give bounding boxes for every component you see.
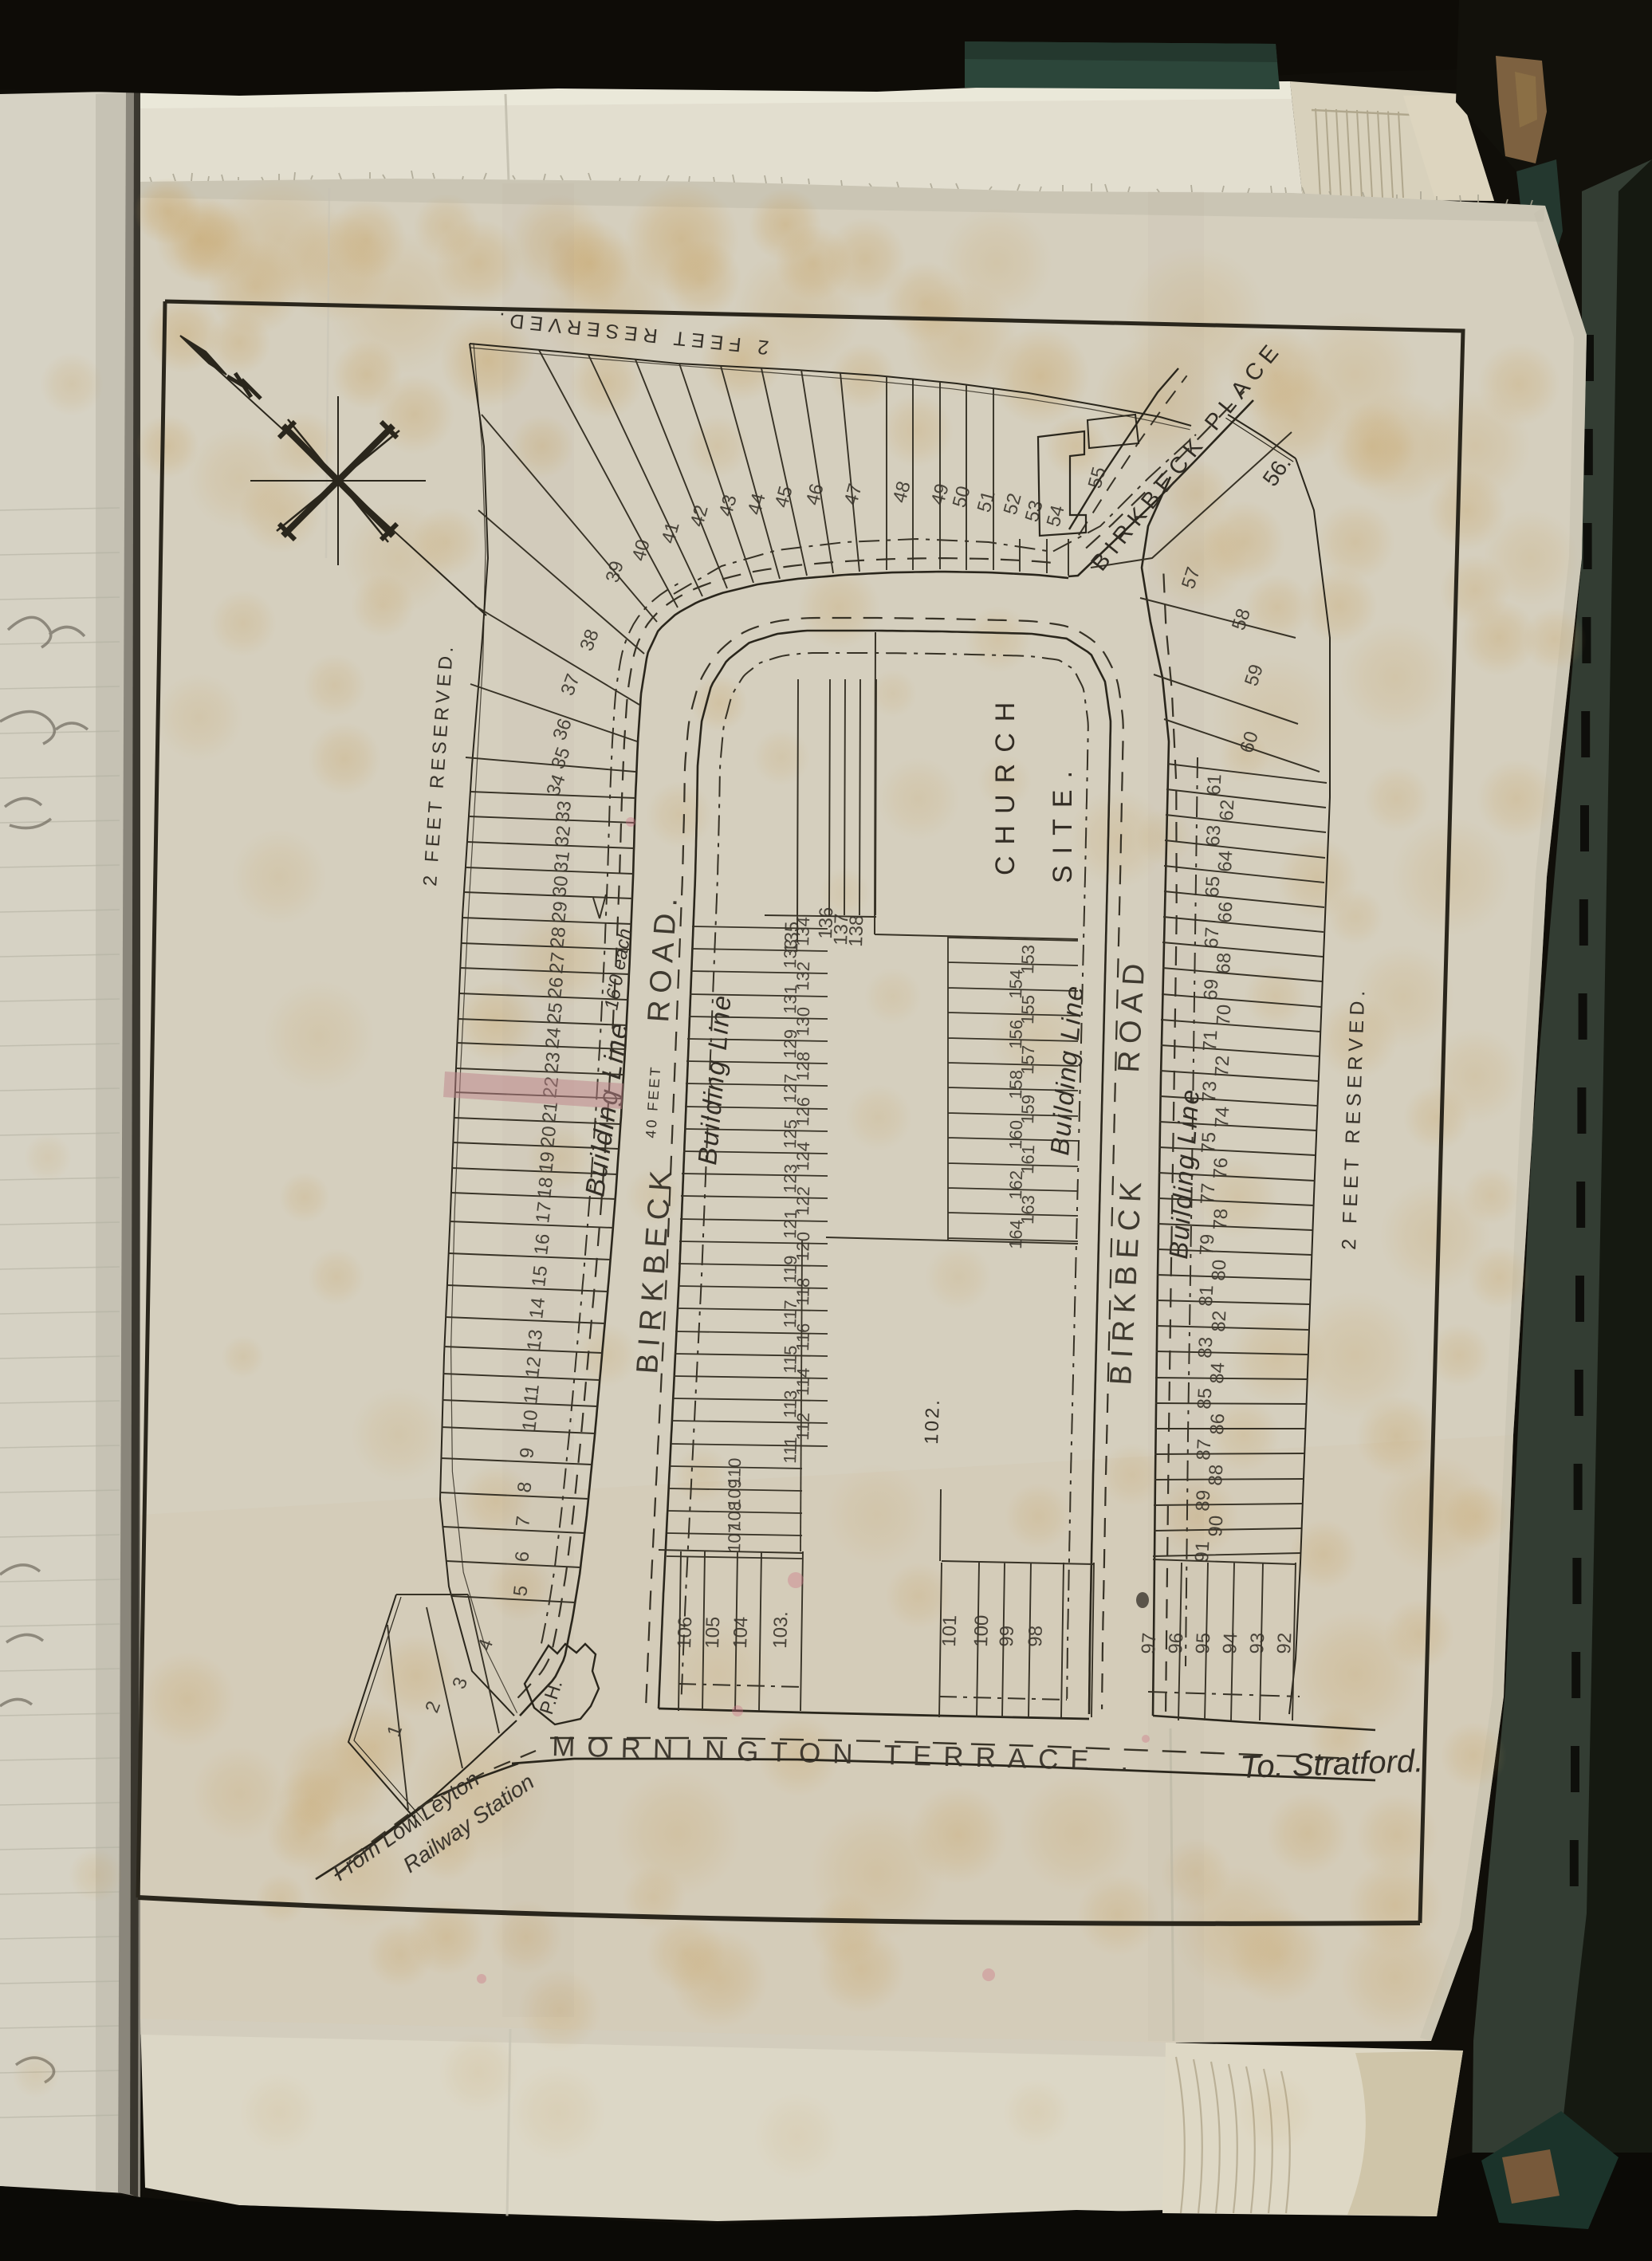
svg-text:82: 82 [1208,1310,1230,1332]
svg-text:76: 76 [1209,1157,1232,1179]
svg-text:11: 11 [520,1383,544,1406]
svg-text:26: 26 [544,976,568,1000]
svg-text:89: 89 [1192,1489,1214,1512]
svg-text:18: 18 [533,1176,557,1200]
svg-text:63: 63 [1202,824,1225,847]
svg-text:68: 68 [1213,952,1235,974]
svg-text:16: 16 [530,1233,554,1256]
svg-text:31: 31 [550,850,574,874]
svg-text:87: 87 [1193,1438,1215,1461]
svg-text:93: 93 [1246,1632,1268,1654]
svg-text:19: 19 [535,1150,559,1174]
svg-text:25: 25 [543,1001,567,1025]
svg-text:85: 85 [1194,1387,1216,1410]
svg-text:CHURCH: CHURCH [990,691,1021,875]
svg-text:ROAD: ROAD [1112,956,1152,1074]
svg-text:32: 32 [551,824,575,848]
svg-text:103.: 103. [769,1611,793,1650]
svg-text:95: 95 [1192,1632,1214,1654]
svg-text:100: 100 [970,1614,993,1647]
svg-text:13: 13 [523,1328,547,1352]
svg-text:SITE.: SITE. [1048,760,1078,883]
svg-text:159: 159 [1017,1095,1038,1125]
svg-text:104: 104 [730,1616,752,1649]
svg-text:20: 20 [537,1125,560,1149]
svg-text:99: 99 [996,1626,1018,1648]
svg-text:77: 77 [1197,1182,1219,1205]
svg-text:111: 111 [780,1437,800,1464]
svg-text:33: 33 [552,800,576,824]
svg-text:24: 24 [541,1026,565,1050]
svg-text:98: 98 [1025,1626,1047,1648]
svg-text:112: 112 [793,1412,813,1441]
svg-text:105: 105 [702,1616,724,1649]
svg-text:66: 66 [1214,901,1237,923]
svg-text:88: 88 [1205,1464,1227,1486]
svg-text:62: 62 [1216,799,1238,821]
svg-text:15: 15 [528,1264,552,1288]
svg-text:28: 28 [546,926,570,950]
svg-text:83: 83 [1194,1336,1217,1359]
svg-text:70: 70 [1213,1004,1235,1026]
svg-text:97: 97 [1138,1632,1160,1654]
svg-text:86: 86 [1206,1413,1229,1435]
svg-text:71: 71 [1199,1029,1221,1052]
svg-text:161: 161 [1017,1145,1038,1175]
svg-text:91: 91 [1191,1540,1213,1563]
svg-text:81: 81 [1195,1284,1217,1307]
svg-text:138: 138 [845,914,867,947]
svg-text:69: 69 [1200,978,1222,1001]
svg-text:96: 96 [1165,1632,1187,1654]
svg-text:30: 30 [549,875,572,899]
svg-text:72: 72 [1211,1055,1233,1077]
svg-text:10: 10 [518,1409,542,1433]
svg-text:78: 78 [1209,1208,1232,1230]
svg-text:12: 12 [521,1355,545,1379]
svg-text:84: 84 [1206,1362,1229,1384]
svg-text:17: 17 [532,1201,556,1225]
svg-text:80: 80 [1208,1259,1230,1281]
svg-text:106: 106 [674,1616,696,1649]
svg-text:102.: 102. [921,1398,944,1445]
svg-text:94: 94 [1219,1632,1241,1654]
svg-text:64: 64 [1214,850,1237,872]
svg-text:29: 29 [548,900,572,924]
svg-text:To. Stratford.: To. Stratford. [1240,1744,1424,1785]
svg-text:65: 65 [1202,875,1224,898]
svg-text:23: 23 [541,1051,564,1075]
svg-text:79: 79 [1196,1233,1218,1256]
svg-text:27: 27 [545,951,569,975]
svg-text:101: 101 [938,1614,961,1647]
svg-text:61: 61 [1203,773,1225,796]
svg-text:164: 164 [1005,1220,1026,1250]
svg-text:14: 14 [525,1296,549,1320]
svg-text:156: 156 [1005,1020,1026,1050]
svg-text:107: 107 [724,1524,745,1554]
svg-text:154: 154 [1005,969,1026,1000]
svg-text:74: 74 [1211,1106,1233,1128]
svg-text:67: 67 [1201,926,1223,949]
svg-text:90: 90 [1205,1515,1227,1537]
svg-text:92: 92 [1273,1632,1296,1654]
